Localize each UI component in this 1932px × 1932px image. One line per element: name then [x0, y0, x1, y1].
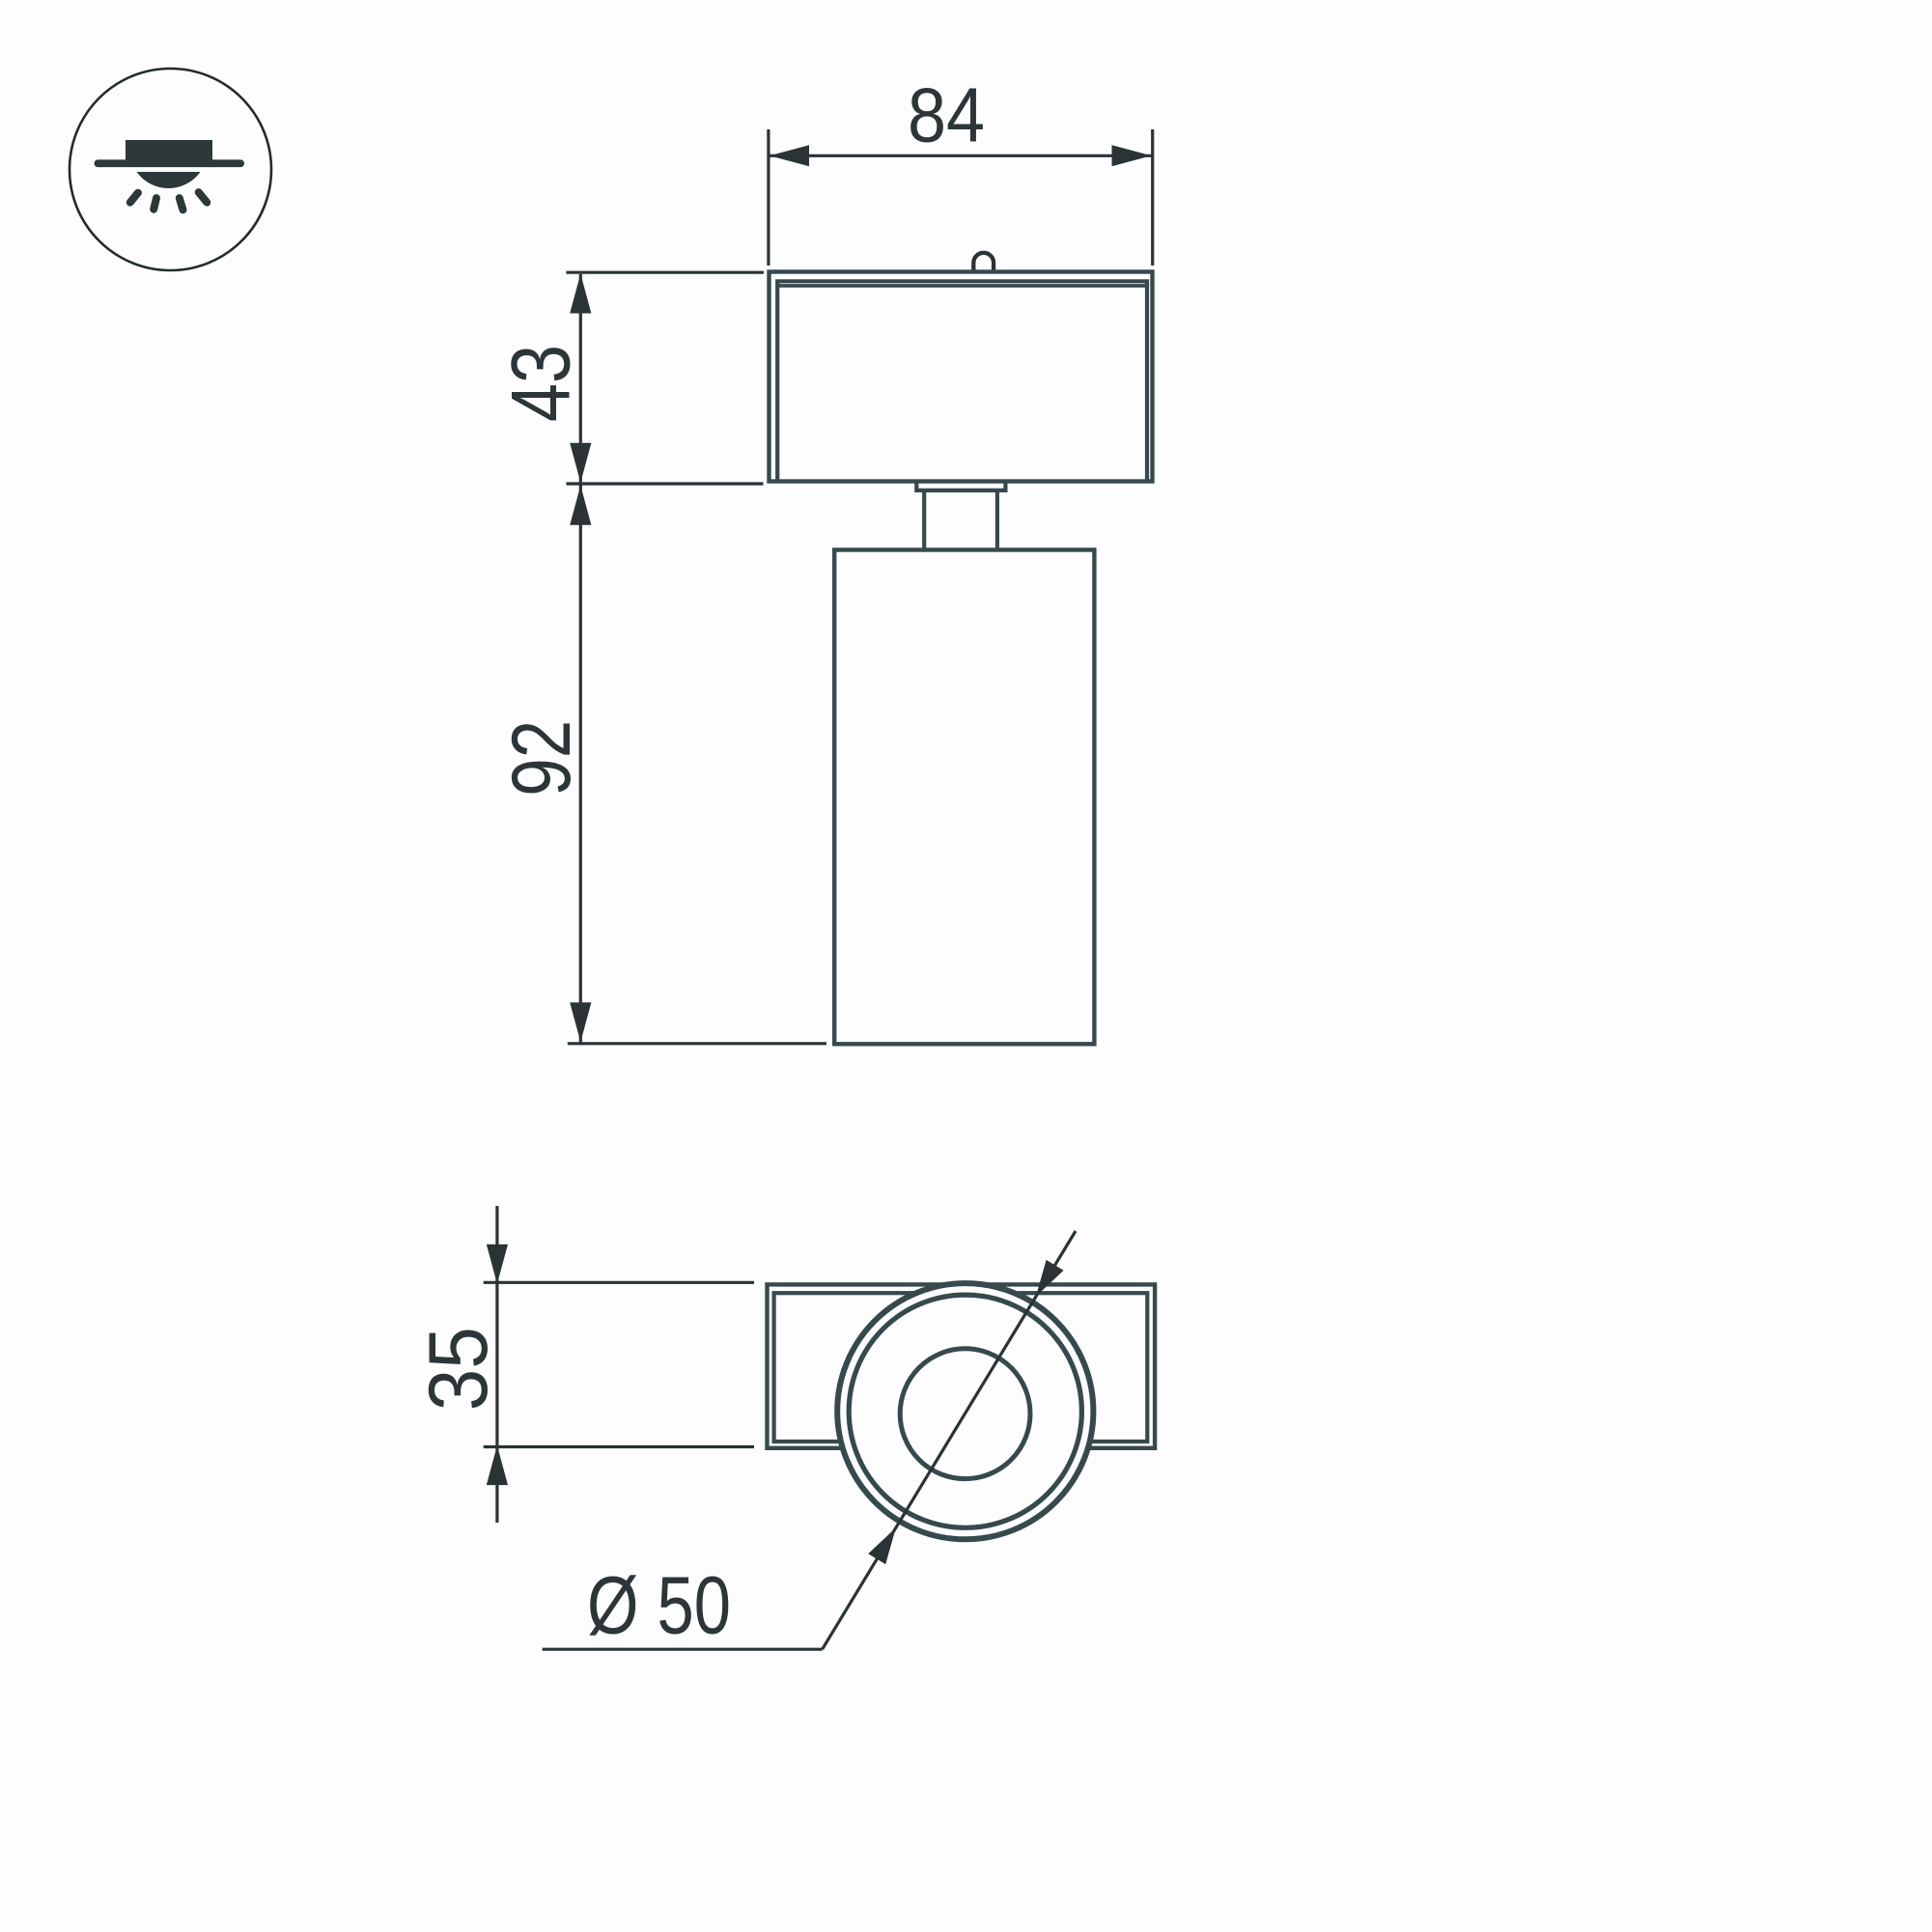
svg-text:35: 35 [412, 1327, 505, 1411]
svg-text:92: 92 [495, 720, 588, 797]
svg-text:43: 43 [495, 345, 588, 422]
svg-text:84: 84 [908, 72, 985, 158]
svg-text:Ø 50: Ø 50 [587, 1560, 731, 1651]
